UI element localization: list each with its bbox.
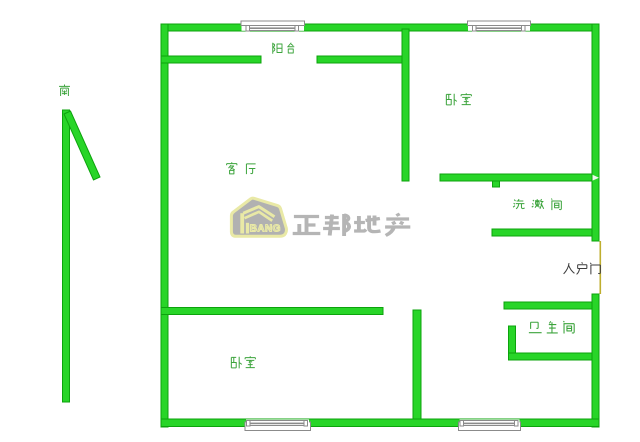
svg-text:BANG: BANG (250, 224, 281, 235)
